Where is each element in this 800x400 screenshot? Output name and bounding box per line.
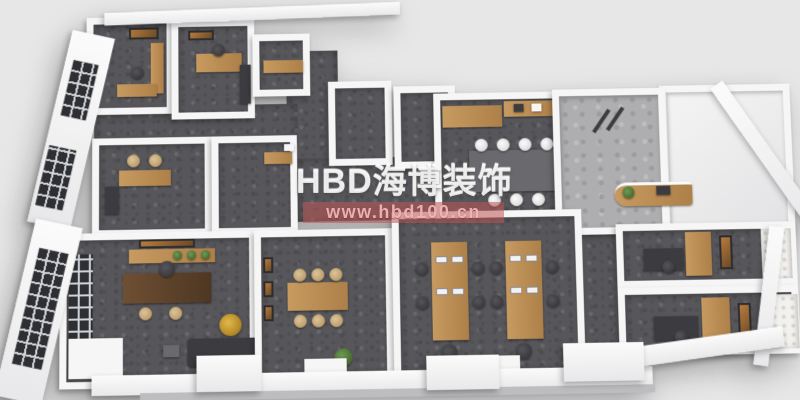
wall-art: [263, 281, 273, 297]
guest-chair: [169, 307, 182, 320]
office-chair: [546, 294, 559, 307]
conference-chair: [532, 193, 545, 206]
wood-feature-wall: [442, 105, 502, 128]
rattan-chair: [149, 154, 162, 167]
window: [61, 60, 99, 121]
monitor: [435, 256, 447, 263]
wall-art: [264, 305, 274, 321]
reception-sign: [656, 186, 670, 195]
office-chair: [471, 261, 484, 274]
wall-art: [188, 30, 214, 40]
window: [35, 145, 76, 211]
rattan-chair: [127, 155, 140, 168]
side-cabinet: [105, 186, 119, 214]
meeting-table: [287, 282, 348, 311]
facade-pillar: [426, 355, 499, 391]
monitor: [525, 255, 537, 262]
monitor: [510, 287, 522, 294]
pantry-cabinet: [263, 60, 303, 73]
bookshelf: [685, 232, 713, 276]
watermark-brand: HBD海博装饰: [296, 164, 526, 200]
facade-pillar: [196, 355, 261, 393]
mirror: [284, 144, 294, 151]
desk: [117, 84, 157, 97]
wall-art: [139, 239, 195, 249]
coffee-table: [163, 345, 179, 357]
shelf-items: [531, 103, 541, 111]
rattan-chair: [294, 315, 307, 328]
rattan-chair: [330, 314, 343, 327]
office-chair: [490, 261, 503, 274]
office-chair: [416, 296, 429, 309]
window-console: [68, 338, 123, 379]
shelf-items: [514, 104, 524, 112]
office-chair: [662, 260, 675, 273]
monitor: [509, 255, 521, 262]
monitor: [451, 256, 463, 263]
interview-room: [92, 137, 212, 238]
meeting-room: [254, 228, 395, 386]
floorplan-render: HBD海博装饰 www.hbd100.cn: [0, 0, 800, 400]
wall-art: [129, 27, 159, 39]
office-chair: [546, 260, 559, 273]
desk: [119, 170, 171, 187]
monitor: [452, 288, 464, 295]
monitor: [526, 286, 538, 293]
office-chair: [472, 295, 485, 308]
rattan-chair: [311, 268, 324, 281]
wall-art: [719, 235, 733, 269]
rattan-chair: [293, 269, 306, 282]
wall-desk: [264, 152, 292, 164]
guest-chair: [139, 307, 152, 320]
manager-office-2: [171, 19, 255, 120]
office-chair: [490, 295, 503, 308]
gold-floor-lamp: [219, 314, 241, 337]
pantry-room: [252, 34, 310, 97]
facade-pillar: [563, 342, 645, 382]
cabinet: [240, 65, 251, 104]
storage-room-1: [328, 81, 393, 166]
open-office: [392, 209, 586, 378]
rattan-chair: [329, 268, 342, 281]
watermark-band: www.hbd100.cn: [303, 202, 504, 223]
office-chair: [415, 262, 428, 275]
watermark-url: www.hbd100.cn: [326, 202, 481, 223]
monitor: [436, 288, 448, 295]
phone-booth-room: [211, 135, 297, 235]
office-chair: [131, 66, 144, 79]
rattan-chair: [312, 314, 325, 327]
wall-art: [263, 257, 273, 273]
